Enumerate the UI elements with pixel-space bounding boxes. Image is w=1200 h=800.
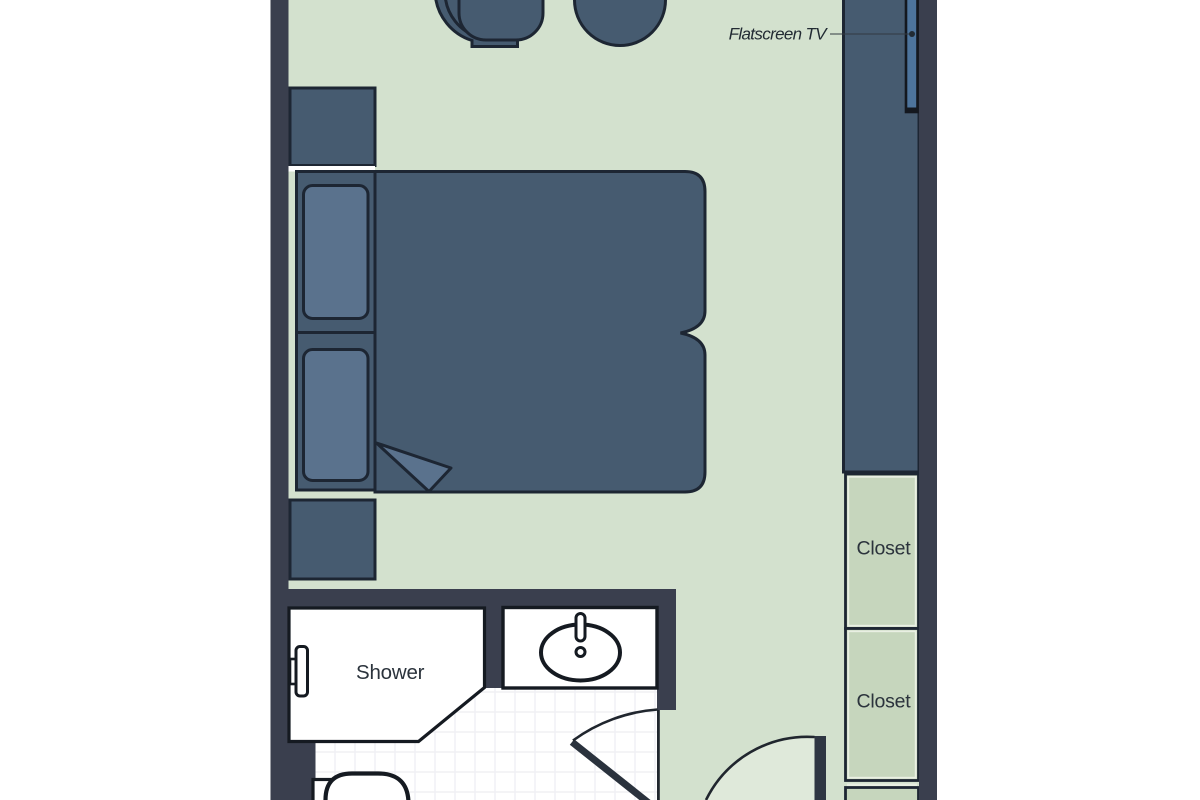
svg-text:Closet: Closet xyxy=(856,691,911,713)
svg-text:Shower: Shower xyxy=(356,661,425,684)
svg-text:Flatscreen TV: Flatscreen TV xyxy=(729,25,829,44)
svg-text:Closet: Closet xyxy=(856,538,911,560)
